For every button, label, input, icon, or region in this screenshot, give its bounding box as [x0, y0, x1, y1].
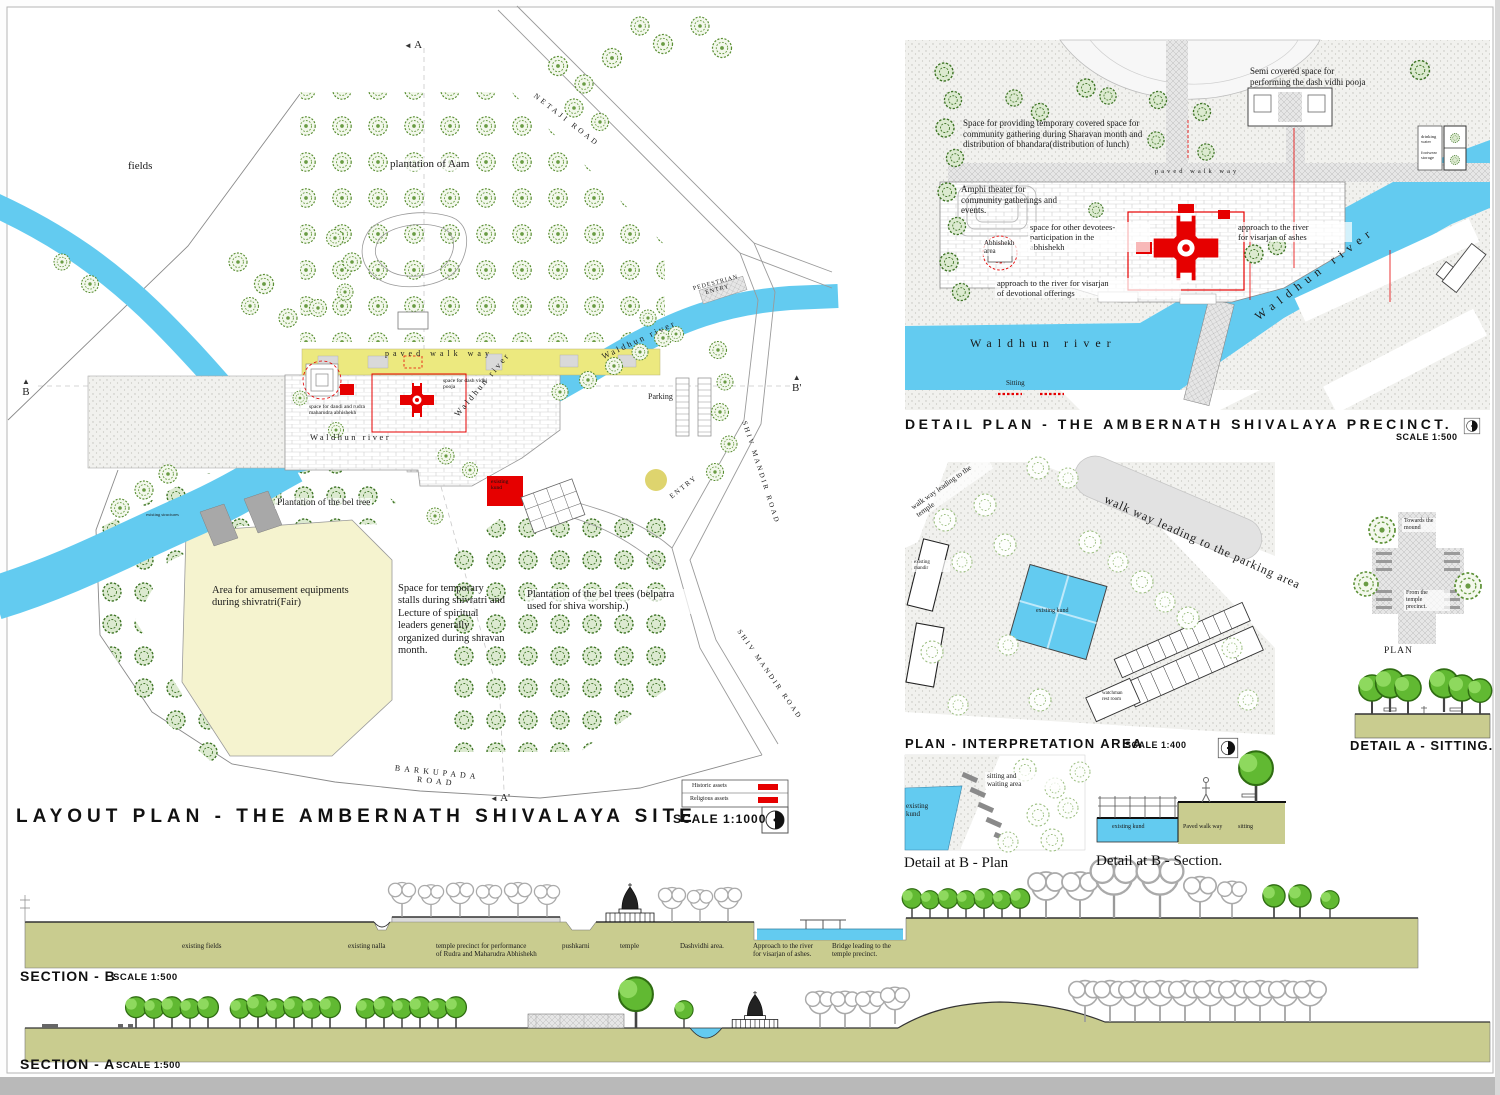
section-marker-b-prime: ▲B'	[792, 372, 801, 394]
label-fields: fields	[128, 160, 152, 173]
label-dandi-rudra: space for dandi and rudra maharudra abhi…	[309, 404, 375, 417]
label-existing-kund: existing kund	[491, 479, 525, 492]
interpretation-scale: SCALE 1:400	[1125, 740, 1187, 750]
sheet-artwork	[0, 0, 1500, 1095]
section-b-caption: SECTION - B	[20, 968, 116, 984]
label-paved-walkway-detail: paved walk way	[1155, 168, 1239, 176]
label-existing-fields: existing fields	[182, 942, 221, 950]
section-marker-a-prime: ◄ A'	[490, 793, 510, 804]
label-detail-b-paved: Paved walk way	[1183, 824, 1222, 831]
label-devotees-space: space for other devotees- participation …	[1028, 222, 1150, 252]
detail-plan-scale: SCALE 1:500	[1396, 432, 1458, 442]
marker-triangle-icon: ◄	[490, 794, 498, 803]
label-footwear-storage: footwear storage	[1421, 150, 1447, 161]
section-marker-a: ◄ A	[404, 40, 422, 51]
label-from-precinct: From the temple precinct.	[1404, 590, 1450, 611]
label-sitting-detail: Sitting	[1006, 379, 1025, 387]
section-a-scale: SCALE 1:500	[116, 1060, 181, 1071]
label-paved-walkway: paved walk way	[385, 349, 493, 358]
legend-religious-swatch	[758, 797, 778, 803]
detail-b-section-caption: Detail at B - Section.	[1096, 853, 1222, 870]
marker-triangle-icon: ◄	[404, 41, 412, 50]
label-drinking-water: drinking water	[1421, 134, 1445, 145]
label-semi-covered: Semi covered space for performing the da…	[1250, 66, 1412, 87]
legend-religious-label: Religious assets	[690, 796, 729, 803]
detail-a-ground	[1355, 714, 1490, 738]
detail-a-title: DETAIL A - SITTING.	[1350, 738, 1493, 753]
label-waldhun-river-1: Waldhun river	[310, 432, 391, 442]
drawing-sheet: fields plantation of Aam NETAJI ROAD ◄ A…	[0, 0, 1500, 1095]
interpretation-title: PLAN - INTERPRETATION AREA	[905, 736, 1143, 751]
label-pushkarni: pushkarni	[562, 942, 590, 950]
section-b-scale: SCALE 1:500	[113, 972, 178, 983]
plaza	[88, 376, 285, 468]
label-dashvidhi-area: Dashvidhi area.	[680, 942, 724, 950]
label-detail-b-kund-section: existing kund	[1112, 824, 1145, 831]
label-existing-mandir: existing mandir	[912, 560, 950, 572]
label-sitting-waiting: sitting and waiting area	[985, 772, 1061, 789]
layout-plan-title: LAYOUT PLAN - THE AMBERNATH SHIVALAYA SI…	[16, 806, 697, 828]
pavilion	[1248, 88, 1332, 126]
label-existing-structures: existing structures	[146, 512, 179, 517]
label-temporary-stalls: Space for temporary stalls during shivra…	[398, 583, 540, 657]
layout-plan-scale: SCALE 1:1000	[673, 812, 766, 826]
label-watchman: watchman rest room	[1102, 691, 1144, 703]
marker-triangle-icon: ▲	[22, 377, 30, 386]
label-amusement-area: Area for amusement equipments during shi…	[212, 585, 404, 610]
label-waldhun-river-detail-1: Waldhun river	[970, 336, 1117, 350]
label-detail-a-plan: PLAN	[1384, 646, 1413, 657]
fair-area	[182, 520, 392, 756]
label-detail-b-sitting: sitting	[1238, 824, 1253, 831]
label-existing-nalla: existing nalla	[348, 942, 386, 950]
entry-circle	[645, 469, 667, 491]
label-bel-tree: Plantation of the bel tree	[275, 498, 372, 509]
label-bel-trees: Plantation of the bel trees (belpatra us…	[525, 589, 695, 614]
facility-buildings	[1418, 126, 1466, 170]
detail-b-plan-caption: Detail at B - Plan	[904, 855, 1008, 872]
interpretation-art	[905, 450, 1275, 758]
label-parking: Parking	[648, 392, 673, 401]
label-amphi-theater: Amphi theater for community gatherings a…	[961, 184, 1079, 216]
section-a-structure	[528, 1014, 624, 1028]
detail-plan-art	[905, 40, 1490, 434]
label-bridge-leading: Bridge leading to the temple precinct.	[832, 942, 928, 959]
section-marker-b: ▲B	[22, 376, 30, 398]
detail-b-ground	[1178, 802, 1285, 844]
label-temple-precinct: temple precinct for performance of Rudra…	[436, 942, 564, 959]
label-plantation-aam: plantation of Aam	[388, 158, 471, 171]
legend-historic-swatch	[758, 784, 778, 790]
pushkarni	[306, 364, 338, 396]
north-icon-interpretation	[1218, 738, 1238, 758]
label-approach-offerings: approach to the river for visarjan of de…	[995, 278, 1181, 298]
north-icon-detail	[1464, 418, 1480, 434]
label-approach-ashes: approach to the river for visarjan of as…	[1236, 222, 1352, 242]
stage-building	[398, 312, 428, 329]
marker-triangle-icon: ▲	[793, 373, 801, 382]
label-community-space: Space for providing temporary covered sp…	[963, 118, 1201, 150]
label-abhishekh-area: Abhishekh area	[982, 239, 1034, 256]
legend-historic-label: Historic assets	[692, 783, 727, 790]
detail-plan-title: DETAIL PLAN - THE AMBERNATH SHIVALAYA PR…	[905, 416, 1452, 432]
section-a-caption: SECTION - A	[20, 1056, 115, 1072]
label-towards-mound: Towards the mound	[1402, 518, 1452, 532]
label-detail-b-kund: existing kund	[906, 802, 942, 819]
label-temple: temple	[620, 942, 639, 950]
label-interp-existing-kund: existing kund	[1036, 608, 1069, 615]
